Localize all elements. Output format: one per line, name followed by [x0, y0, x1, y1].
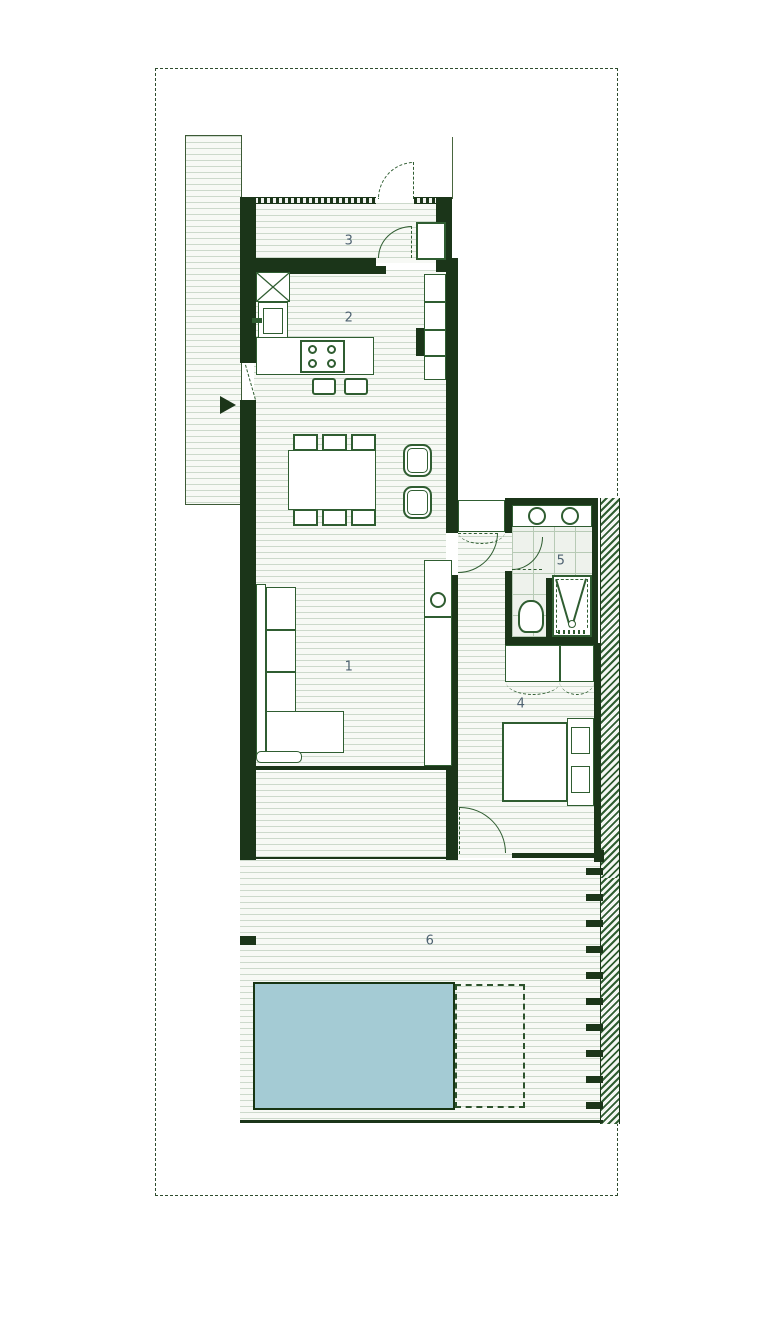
bathroom-sink [528, 507, 546, 525]
armchair [403, 444, 432, 477]
stove-burner [308, 359, 317, 368]
sofa-seats [266, 587, 296, 713]
glass-wall-bedroom-south [512, 853, 594, 858]
boundary-hatch-east-upper [600, 498, 620, 878]
terrace-left-block [240, 936, 256, 945]
kitchen-tall-cabinet [424, 274, 446, 302]
kitchen-tall-cabinet [424, 302, 446, 330]
wall-bedroom-south-corner [594, 850, 604, 862]
pillow [571, 727, 590, 754]
front-yard-line [452, 137, 453, 199]
pool [253, 982, 455, 1110]
terrace-edge-tick [586, 868, 603, 875]
door-stop-block [376, 266, 386, 274]
sofa-chaise [266, 711, 344, 753]
porch-south-line [256, 857, 448, 859]
wall-bathroom-left-b [505, 571, 512, 643]
stove-burner [327, 345, 336, 354]
bathroom-sink [561, 507, 579, 525]
stove [300, 340, 345, 373]
wall-east-corridor-upper [446, 258, 458, 533]
sofa-cushion-divider [266, 629, 296, 631]
glass-wall-living-south [254, 766, 446, 770]
room-label-entrance: 3 [345, 234, 354, 249]
wall-bathroom-top [505, 498, 598, 505]
sofa-back [256, 584, 266, 756]
boundary-hatch-east-lower [600, 878, 620, 1124]
corner-cabinet-cross-icon [256, 272, 290, 302]
pool-deck-dashed [455, 984, 525, 1108]
fence-dotted-top [252, 197, 376, 204]
walkway-strip [185, 135, 242, 505]
fireplace-flue [430, 592, 446, 608]
wardrobe [505, 645, 560, 682]
kitchen-faucet [252, 318, 262, 323]
toilet [518, 600, 544, 633]
terrace-edge-tick [586, 1050, 603, 1057]
bathroom-vanity [512, 505, 592, 527]
dining-chair [293, 434, 318, 451]
armchair [403, 486, 432, 519]
floor-porch [256, 772, 448, 858]
wall-west-lower [240, 400, 256, 860]
terrace-south-edge [240, 1120, 603, 1123]
room-label-bedroom: 4 [517, 697, 526, 712]
dining-chair [351, 509, 376, 526]
terrace-edge-tick [586, 946, 603, 953]
shower-grate [558, 630, 588, 634]
wall-west-upper [240, 197, 256, 363]
dining-chair [322, 434, 347, 451]
terrace-edge-tick [586, 1024, 603, 1031]
room-label-kitchen: 2 [345, 311, 354, 326]
fireplace-unit [424, 560, 452, 766]
floor-plan-canvas: 1 2 3 4 5 6 [0, 0, 768, 1344]
terrace-edge-tick [586, 1076, 603, 1083]
terrace-edge-tick [586, 998, 603, 1005]
sofa-cushion-divider [266, 671, 296, 673]
built-in-oven-block [416, 328, 424, 356]
hall-closet [416, 222, 446, 260]
dining-table [288, 450, 376, 510]
dining-chair [322, 509, 347, 526]
dining-chair [351, 434, 376, 451]
room-label-terrace: 6 [426, 934, 435, 949]
corridor-cabinet [458, 500, 505, 532]
stove-burner [327, 359, 336, 368]
stove-burner [308, 345, 317, 354]
wall-bedroom-east [594, 643, 600, 860]
terrace-edge-tick [586, 1102, 603, 1109]
kitchen-tall-cabinet [424, 330, 446, 356]
dining-chair [293, 509, 318, 526]
sofa-ottoman [256, 751, 302, 763]
wardrobe [560, 645, 594, 682]
island-stool [312, 378, 336, 395]
room-label-bathroom: 5 [557, 554, 566, 569]
wall-bathroom-left-a [505, 498, 512, 533]
island-stool [344, 378, 368, 395]
room-label-living: 1 [345, 660, 354, 675]
corridor-door-leaf [458, 533, 498, 534]
fireplace-divider [424, 616, 452, 618]
terrace-edge-tick [586, 920, 603, 927]
bathroom-door-leaf [512, 569, 542, 570]
hall-kitchen-door-leaf [411, 226, 412, 258]
bed [502, 722, 568, 802]
entrance-arrow-icon [220, 396, 236, 414]
kitchen-sink-basin [263, 308, 283, 334]
kitchen-tall-cabinet [424, 356, 446, 380]
terrace-edge-tick [586, 972, 603, 979]
bedroom-door-leaf [459, 807, 460, 854]
gate-door-leaf [413, 162, 414, 199]
terrace-edge-tick [586, 894, 603, 901]
shower-drain [568, 620, 576, 628]
wall-bathroom-right [592, 498, 598, 643]
pillow [571, 766, 590, 793]
wall-bathroom-bottom [505, 637, 598, 645]
